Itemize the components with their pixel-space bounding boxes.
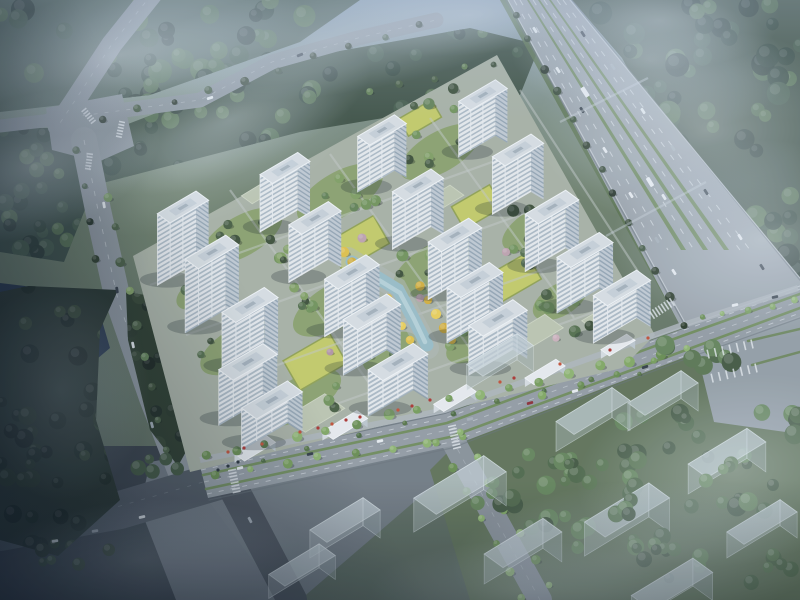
aerial-rendering <box>0 0 800 600</box>
atmosphere <box>0 0 800 600</box>
scene-canvas <box>0 0 800 600</box>
color-grade <box>0 0 800 600</box>
